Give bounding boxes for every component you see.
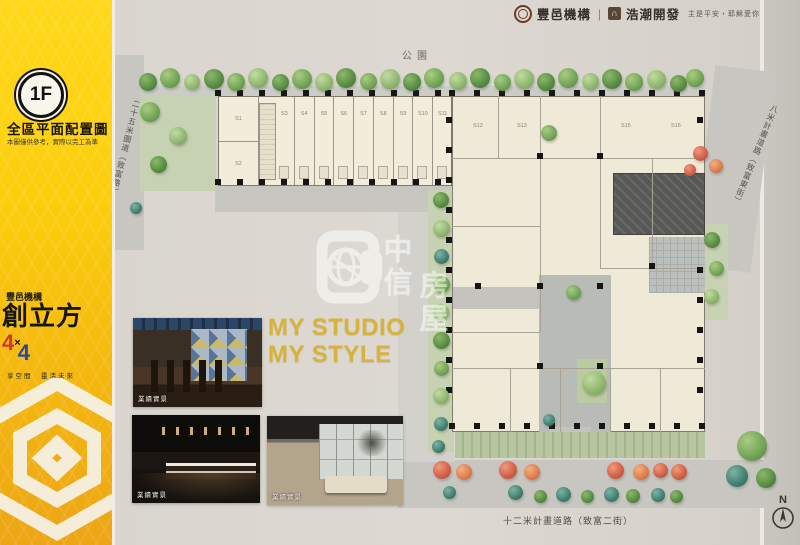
- photo-lounge-bar: 業績實景: [132, 415, 260, 503]
- column-dot: [325, 179, 331, 185]
- entrance-gap: [549, 427, 591, 432]
- tree-icon: [558, 68, 578, 88]
- column-dot: [446, 177, 452, 183]
- shop-unit: S7: [353, 97, 373, 185]
- column-dot: [215, 179, 221, 185]
- tree-icon: [336, 68, 356, 88]
- fengyi-logo-icon: [514, 5, 532, 23]
- tree-icon: [582, 73, 599, 90]
- brand-4-blue: 4: [18, 340, 30, 365]
- terrace-grid: [649, 237, 705, 293]
- tree-icon: [424, 68, 444, 88]
- tree-icon: [432, 440, 445, 453]
- tree-icon: [449, 72, 467, 90]
- column-dot: [446, 357, 452, 363]
- column-dot: [697, 357, 703, 363]
- tree-icon: [403, 73, 421, 91]
- tree-icon: [130, 202, 142, 214]
- tree-icon: [227, 73, 245, 91]
- tree-icon: [433, 461, 451, 479]
- column-dot: [499, 90, 505, 96]
- side-banner: 1F 全區平面配置圖 本圖僅供參考，實際以完工為準 豐邑機構 創立方4×4 享空…: [0, 0, 115, 545]
- company2-name: 浩潮開發: [626, 4, 680, 23]
- brand-product-name: 創立方: [2, 303, 83, 329]
- shop-units-row: S3 S4 S5 S6 S7 S8 S9 S10 S11: [275, 97, 452, 185]
- column-dot: [697, 267, 703, 273]
- hexagon-spiral-logo-icon: [0, 378, 115, 545]
- column-dot: [474, 90, 480, 96]
- tree-icon: [169, 127, 187, 145]
- column-dot: [599, 423, 605, 429]
- tree-icon: [604, 487, 619, 502]
- photo-detail: [151, 360, 231, 392]
- plan-title: 全區平面配置圖: [7, 118, 109, 138]
- shop-unit: S4: [294, 97, 314, 185]
- tree-icon: [625, 73, 643, 91]
- tree-icon: [647, 70, 666, 89]
- column-dot: [413, 90, 419, 96]
- tree-icon: [626, 489, 640, 503]
- tree-icon: [360, 73, 377, 90]
- column-dot: [281, 90, 287, 96]
- shop-unit: S5: [314, 97, 334, 185]
- shop-unit: S10: [412, 97, 432, 185]
- column-dot: [699, 90, 705, 96]
- tree-icon: [524, 464, 540, 480]
- tree-icon: [651, 488, 665, 502]
- column-dot: [649, 423, 655, 429]
- tree-icon: [582, 371, 606, 395]
- column-dot: [524, 423, 530, 429]
- unit-label: S15: [621, 123, 631, 129]
- column-dot: [499, 423, 505, 429]
- column-dot: [391, 179, 397, 185]
- column-dot: [697, 327, 703, 333]
- road-south-label: 十二米計畫道路（致富二街）: [458, 514, 678, 527]
- tree-icon: [433, 388, 449, 404]
- column-dot: [446, 207, 452, 213]
- column-dot: [697, 117, 703, 123]
- tree-icon: [470, 68, 490, 88]
- column-dot: [259, 90, 265, 96]
- column-dot: [597, 283, 603, 289]
- plaza-south-of-shops: [215, 184, 455, 212]
- tree-icon: [292, 69, 312, 89]
- column-dot: [303, 90, 309, 96]
- tree-icon: [581, 490, 594, 503]
- column-dot: [435, 179, 441, 185]
- tree-icon: [653, 463, 668, 478]
- column-dot: [446, 117, 452, 123]
- tree-icon: [272, 74, 289, 91]
- tree-icon: [160, 68, 180, 88]
- fixture: [417, 166, 427, 179]
- column-dot: [649, 90, 655, 96]
- column-dot: [597, 153, 603, 159]
- column-dot: [674, 423, 680, 429]
- tree-icon: [686, 69, 704, 87]
- column-dot: [413, 179, 419, 185]
- wall-line: [600, 96, 601, 268]
- tree-icon: [434, 417, 448, 431]
- column-dot: [624, 423, 630, 429]
- column-dot: [347, 90, 353, 96]
- column-dot: [697, 297, 703, 303]
- unit-label: S12: [473, 123, 483, 129]
- fixture: [338, 166, 348, 179]
- building-shop-row: S1 S2 S3 S4 S5 S6 S7 S8 S9 S10 S11: [218, 96, 452, 186]
- photo-detail: [355, 430, 389, 456]
- fixture: [358, 166, 368, 179]
- column-dot: [549, 90, 555, 96]
- brand-4-red: 4: [2, 330, 14, 355]
- column-dot: [281, 179, 287, 185]
- column-dot: [474, 423, 480, 429]
- roof-dark-section: [613, 173, 705, 235]
- compass: N: [768, 494, 798, 535]
- floor-badge: 1F: [18, 72, 64, 118]
- fixture: [279, 166, 289, 179]
- column-dot: [446, 147, 452, 153]
- building-main-block: S12 S13 S15 S16: [452, 96, 705, 432]
- unit-label: S13: [517, 123, 527, 129]
- tree-icon: [726, 465, 748, 487]
- photo-caption: 業績實景: [138, 393, 168, 403]
- column-dot: [597, 363, 603, 369]
- tree-icon: [566, 285, 581, 300]
- photo-detail: [325, 476, 387, 493]
- tree-icon: [671, 464, 687, 480]
- wall-line: [452, 158, 705, 159]
- tree-icon: [434, 361, 449, 376]
- developer-logos: 豐邑機構 | ∩ 浩潮開發 主是平安・耶穌愛你: [514, 4, 760, 23]
- shop-units-left: S1 S2: [219, 97, 259, 185]
- tree-icon: [184, 74, 200, 90]
- watermark-zhongxin-house: 中信 房屋: [316, 228, 486, 340]
- compass-icon: [771, 506, 795, 530]
- tree-icon: [443, 486, 456, 499]
- photo-caption: 業績實景: [137, 489, 167, 499]
- road-south: [398, 460, 764, 508]
- column-dot: [237, 179, 243, 185]
- tree-icon: [709, 261, 724, 276]
- photo-caption: 業績實景: [272, 491, 302, 501]
- wall-line: [610, 368, 611, 432]
- tree-icon: [704, 289, 719, 304]
- photo-living-room: 業績實景: [267, 416, 403, 505]
- stairwell: [259, 103, 276, 180]
- shop-unit: S11: [432, 97, 452, 185]
- tree-icon: [607, 462, 624, 479]
- tree-icon: [494, 74, 511, 91]
- shop-unit: S3: [275, 97, 294, 185]
- tree-icon: [543, 414, 555, 426]
- tree-icon: [456, 464, 472, 480]
- column-dot: [699, 423, 705, 429]
- column-dot: [369, 179, 375, 185]
- shop-unit: S9: [393, 97, 413, 185]
- tree-icon: [433, 192, 449, 208]
- tree-icon: [693, 146, 708, 161]
- wall-line: [452, 226, 540, 227]
- tree-icon: [534, 490, 547, 503]
- photo-lobby: 業績實景: [133, 318, 262, 407]
- tree-icon: [670, 490, 683, 503]
- column-dot: [574, 423, 580, 429]
- column-dot: [369, 90, 375, 96]
- headline-line2: MY STYLE: [268, 341, 405, 368]
- column-dot: [649, 263, 655, 269]
- fixture: [378, 166, 388, 179]
- tree-icon: [602, 69, 622, 89]
- watermark-text-col1: 中信: [378, 234, 411, 300]
- wall-line: [660, 368, 661, 432]
- company1-name: 豐邑機構: [537, 4, 591, 23]
- tree-icon: [737, 431, 767, 461]
- tree-icon: [248, 68, 268, 88]
- tree-icon: [541, 125, 557, 141]
- fixture: [319, 166, 329, 179]
- brochure-page: 豐邑機構 | ∩ 浩潮開發 主是平安・耶穌愛你 S1 S2 S3 S4 S5 S…: [0, 0, 800, 545]
- logo-divider: |: [598, 7, 601, 21]
- shop-unit: S6: [333, 97, 353, 185]
- tree-icon: [556, 487, 571, 502]
- unit-label: S1: [219, 97, 258, 141]
- tree-icon: [633, 464, 649, 480]
- column-dot: [237, 90, 243, 96]
- column-dot: [435, 90, 441, 96]
- column-dot: [303, 179, 309, 185]
- column-dot: [537, 363, 543, 369]
- column-dot: [599, 90, 605, 96]
- tree-icon: [315, 73, 333, 91]
- haochao-logo-icon: ∩: [608, 7, 621, 20]
- column-dot: [391, 90, 397, 96]
- hedge-south: [455, 432, 705, 458]
- tree-icon: [204, 69, 224, 89]
- column-dot: [325, 90, 331, 96]
- column-dot: [537, 153, 543, 159]
- tree-icon: [380, 69, 400, 89]
- tree-icon: [684, 164, 696, 176]
- tree-icon: [499, 461, 517, 479]
- column-dot: [259, 179, 265, 185]
- column-dot: [574, 90, 580, 96]
- column-dot: [524, 90, 530, 96]
- brand-block: 豐邑機構 創立方4×4 享空間 靈活未來: [2, 290, 110, 380]
- column-dot: [624, 90, 630, 96]
- wall-line: [452, 368, 705, 369]
- photo-detail: [162, 427, 257, 435]
- plan-disclaimer: 本圖僅供參考，實際以完工為準: [7, 136, 98, 146]
- column-dot: [347, 179, 353, 185]
- column-dot: [449, 423, 455, 429]
- tree-icon: [140, 102, 160, 122]
- wall-line: [652, 158, 653, 268]
- wall-line: [560, 368, 561, 432]
- tree-icon: [508, 485, 523, 500]
- company-slogan: 主是平安・耶穌愛你: [688, 9, 760, 19]
- park-label: 公園: [402, 47, 432, 62]
- tree-icon: [537, 73, 555, 91]
- tree-icon: [139, 73, 157, 91]
- tree-icon: [756, 468, 776, 488]
- column-dot: [449, 90, 455, 96]
- wall-line: [498, 96, 499, 158]
- watermark-text-col2: 房屋: [414, 270, 447, 336]
- column-dot: [697, 387, 703, 393]
- compass-north-label: N: [768, 494, 798, 506]
- shop-unit: S8: [373, 97, 393, 185]
- column-dot: [537, 283, 543, 289]
- fixture: [398, 166, 408, 179]
- wall-line: [510, 368, 511, 432]
- tree-icon: [150, 156, 167, 173]
- tree-icon: [704, 232, 720, 248]
- tree-icon: [670, 75, 687, 92]
- column-dot: [215, 90, 221, 96]
- tree-icon: [709, 159, 723, 173]
- fixture: [299, 166, 309, 179]
- unit-label: S16: [671, 123, 681, 129]
- tree-icon: [514, 69, 534, 89]
